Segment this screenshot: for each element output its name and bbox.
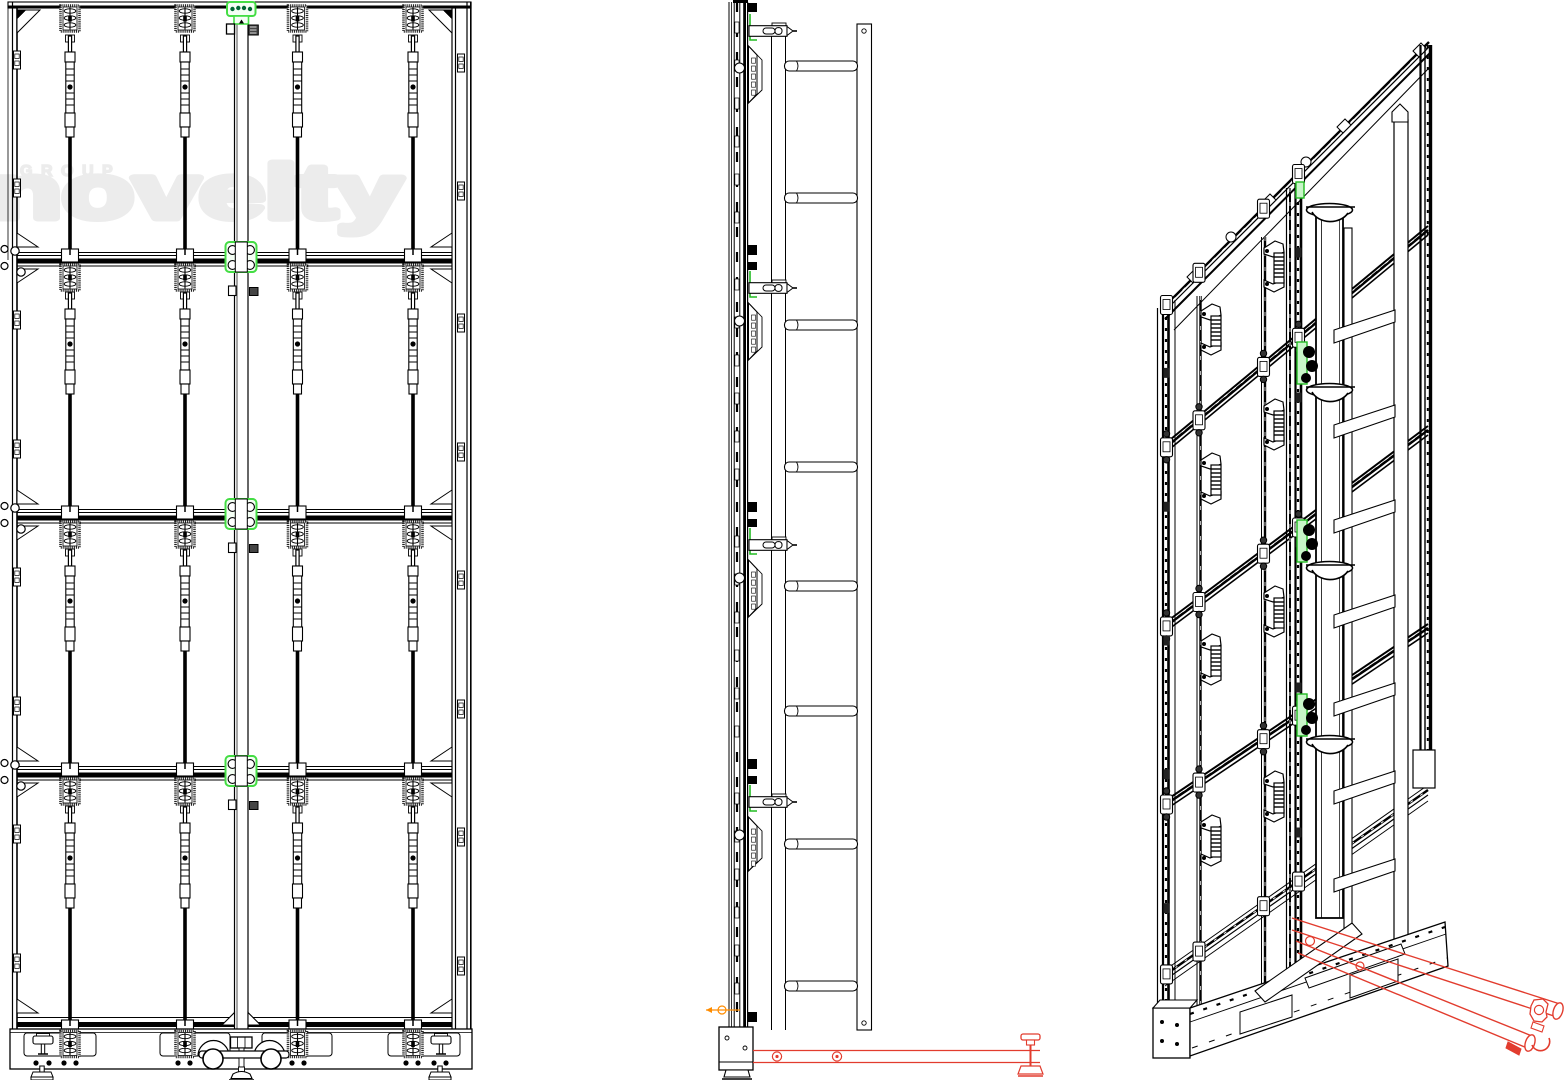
svg-text:novelty: novelty	[0, 150, 402, 235]
